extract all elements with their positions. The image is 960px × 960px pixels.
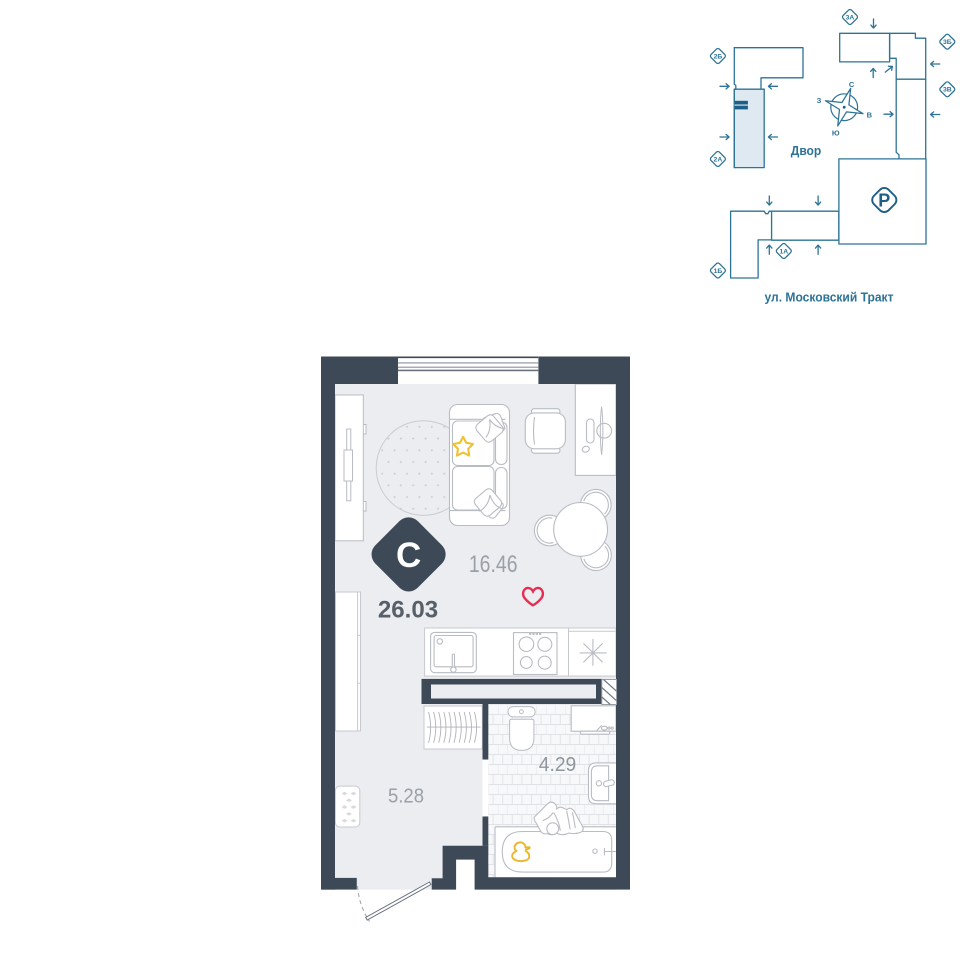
- svg-text:16.46: 16.46: [469, 551, 518, 578]
- svg-text:4.29: 4.29: [539, 754, 577, 776]
- svg-text:ул. Московский Тракт: ул. Московский Тракт: [765, 290, 894, 305]
- svg-text:3А: 3А: [846, 14, 855, 21]
- svg-text:3В: 3В: [943, 87, 952, 94]
- svg-text:В: В: [867, 111, 873, 120]
- svg-text:3Б: 3Б: [943, 39, 952, 46]
- svg-text:Р: Р: [878, 190, 890, 210]
- svg-text:1Б: 1Б: [714, 268, 723, 275]
- svg-text:2Б: 2Б: [714, 53, 723, 60]
- svg-text:2А: 2А: [714, 156, 723, 163]
- svg-text:Ю: Ю: [832, 128, 840, 137]
- svg-text:З: З: [817, 96, 822, 105]
- svg-text:С: С: [396, 536, 421, 575]
- svg-text:Двор: Двор: [791, 143, 822, 158]
- svg-text:1А: 1А: [779, 248, 788, 255]
- svg-text:26.03: 26.03: [378, 597, 438, 624]
- svg-text:5.28: 5.28: [388, 785, 424, 808]
- svg-text:С: С: [849, 80, 855, 89]
